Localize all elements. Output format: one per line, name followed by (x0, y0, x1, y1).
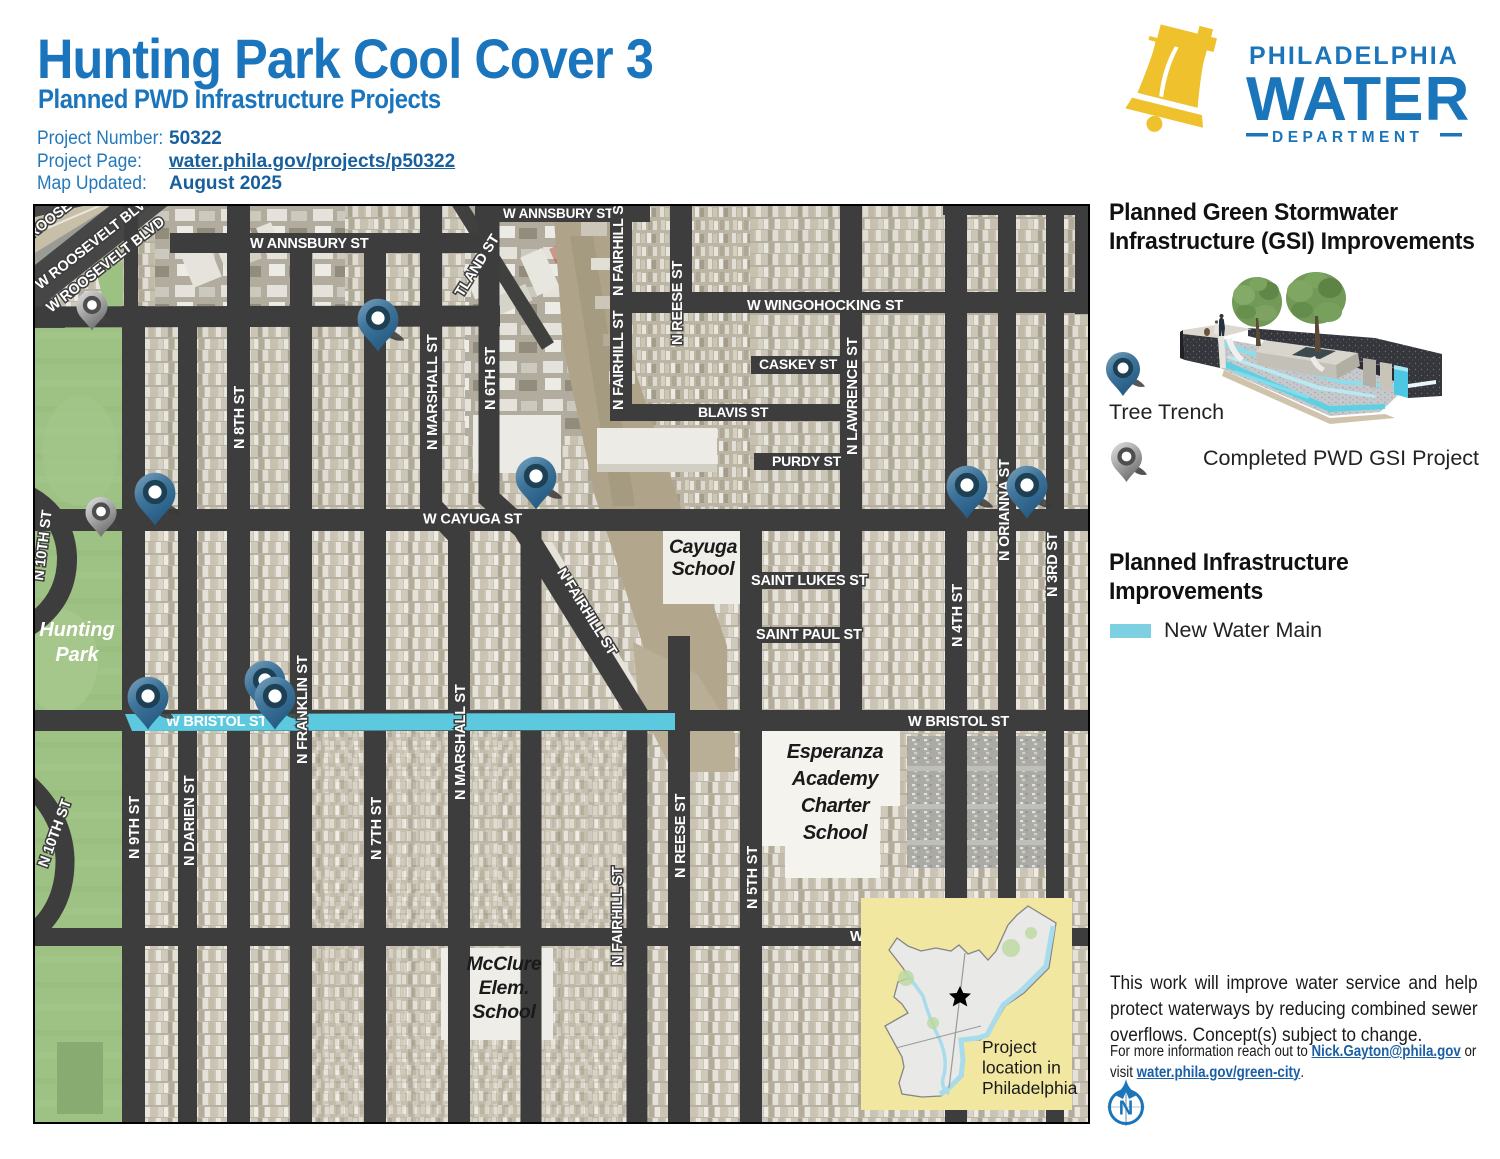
svg-text:W BRISTOL ST: W BRISTOL ST (908, 714, 1009, 730)
svg-text:PURDY ST: PURDY ST (772, 453, 842, 469)
svg-text:W ANNSBURY ST: W ANNSBURY ST (250, 236, 369, 252)
svg-text:N DARIEN ST: N DARIEN ST (182, 775, 198, 866)
svg-text:Charter: Charter (801, 795, 871, 817)
svg-text:Cayuga: Cayuga (669, 536, 738, 558)
svg-text:N: N (1119, 1098, 1133, 1120)
svg-text:Park: Park (55, 644, 99, 666)
svg-text:Esperanza: Esperanza (787, 741, 884, 763)
svg-text:W WINGOHOCKING ST: W WINGOHOCKING ST (747, 298, 903, 314)
svg-text:N FAIRHILL ST: N FAIRHILL ST (610, 866, 626, 966)
svg-text:N 3RD ST: N 3RD ST (1045, 532, 1061, 597)
svg-text:N 7TH ST: N 7TH ST (369, 797, 385, 860)
svg-text:DEPARTMENT: DEPARTMENT (1272, 129, 1424, 146)
svg-text:SAINT LUKES ST: SAINT LUKES ST (751, 573, 868, 589)
svg-text:N 5TH ST: N 5TH ST (745, 846, 761, 909)
svg-text:Academy: Academy (791, 768, 879, 790)
svg-text:N FAIRHILL ST: N FAIRHILL ST (611, 206, 627, 296)
svg-text:N FAIRHILL ST: N FAIRHILL ST (611, 310, 627, 410)
svg-text:N LAWRENCE ST: N LAWRENCE ST (845, 337, 861, 455)
svg-text:SAINT PAUL ST: SAINT PAUL ST (756, 627, 862, 643)
svg-text:N 9TH ST: N 9TH ST (127, 796, 143, 859)
svg-text:N MARSHALL ST: N MARSHALL ST (453, 684, 469, 800)
svg-text:N 6TH ST: N 6TH ST (483, 347, 499, 410)
svg-text:Elem.: Elem. (479, 977, 530, 999)
svg-text:N REESE ST: N REESE ST (670, 260, 686, 345)
svg-text:School: School (672, 558, 736, 580)
svg-text:location in: location in (982, 1058, 1061, 1078)
svg-text:N 8TH ST: N 8TH ST (232, 386, 248, 449)
svg-text:School: School (472, 1001, 536, 1023)
svg-text:N FRANKLIN ST: N FRANKLIN ST (295, 655, 311, 764)
svg-text:School: School (803, 822, 868, 844)
svg-text:Hunting: Hunting (39, 619, 115, 641)
svg-text:Project: Project (982, 1037, 1037, 1057)
svg-text:N 4TH ST: N 4TH ST (950, 584, 966, 647)
svg-text:CASKEY ST: CASKEY ST (759, 356, 838, 372)
svg-text:WATER: WATER (1246, 65, 1470, 134)
svg-text:W BRISTOL ST: W BRISTOL ST (166, 714, 267, 730)
svg-text:N MARSHALL ST: N MARSHALL ST (425, 334, 441, 450)
svg-text:N REESE ST: N REESE ST (673, 793, 689, 878)
svg-text:Philadelphia: Philadelphia (982, 1078, 1078, 1098)
svg-text:BLAVIS ST: BLAVIS ST (698, 404, 769, 420)
svg-text:McClure: McClure (467, 953, 542, 975)
svg-text:W CAYUGA ST: W CAYUGA ST (423, 512, 522, 528)
svg-text:W ANNSBURY ST: W ANNSBURY ST (503, 206, 614, 221)
